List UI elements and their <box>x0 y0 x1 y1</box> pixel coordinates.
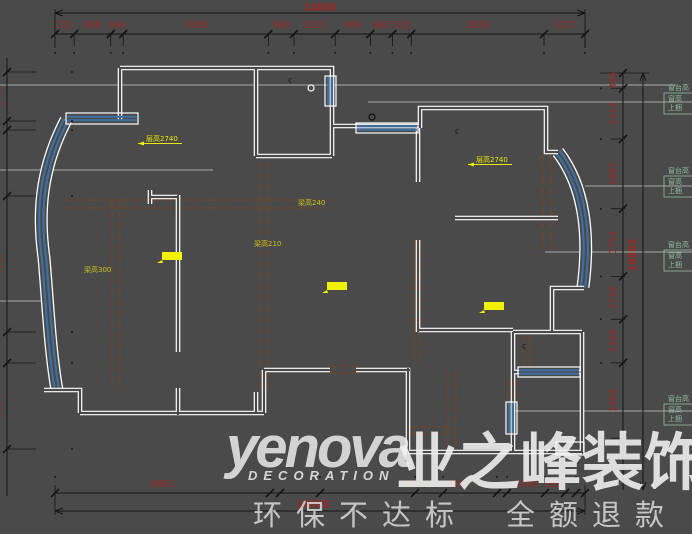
dim-value: 698 <box>273 20 290 31</box>
window-note-line: 窗高 <box>668 177 682 186</box>
dim-value: 1123 <box>303 20 326 31</box>
dim-value: 340 <box>108 20 125 31</box>
room-height-label: 层高2740 <box>146 134 178 143</box>
dim-value: 1954 <box>608 389 619 412</box>
window-note-line: 上捆 <box>668 260 682 269</box>
highlight-bar <box>484 302 504 310</box>
dim-value: 1807 <box>608 162 619 185</box>
highlight-bar <box>327 282 347 290</box>
dim-total: 14988 <box>296 498 329 511</box>
window-note-line: 窗高 <box>668 94 682 103</box>
dim-value: 1753 <box>608 231 619 254</box>
dim-value: 522 <box>56 20 73 31</box>
window-note-line: 窗台高 <box>668 240 689 249</box>
dim-value: 513 <box>393 20 410 31</box>
windows <box>66 76 580 434</box>
dim-value: 395 <box>608 72 619 89</box>
beam-height-label: 梁高240 <box>298 198 325 207</box>
beam-height-label: 梁高210 <box>254 239 281 248</box>
switch-symbol: ς <box>522 342 526 350</box>
switch-symbol: ς <box>455 127 459 135</box>
right-dimension-chain: 39513141807175311101129195410802 <box>600 69 649 490</box>
dim-total: 10802 <box>626 238 639 271</box>
bottom-dimension-chain: 60632401590106096014988 <box>51 476 589 515</box>
cad-floorplan-screenshot: { "colors": { "background": "#4a4a4a", "… <box>0 0 692 534</box>
floor-plan-canvas: ς ς ς 1480052299834039586981123960603513… <box>0 0 692 534</box>
window-note-line: 窗高 <box>668 405 682 414</box>
dim-value: 603 <box>373 20 390 31</box>
dim-value: 3958 <box>184 20 207 31</box>
dim-value: 1060 <box>516 479 539 490</box>
switch-symbol: ς <box>288 76 292 84</box>
window-note-line: 上捆 <box>668 414 682 423</box>
beam-height-label: 梁高300 <box>84 265 111 274</box>
circle-symbol <box>369 114 375 120</box>
label-arrow <box>138 142 144 146</box>
yellow-highlights <box>157 252 504 313</box>
room-height-labels: 层高2740层高2740 <box>138 134 512 167</box>
dim-value: 998 <box>84 20 101 31</box>
highlight-bar <box>162 252 182 260</box>
walls <box>44 68 584 452</box>
room-height-label: 层高2740 <box>476 155 508 164</box>
dim-value: 3004 <box>0 394 4 417</box>
dim-value: 1110 <box>608 286 619 309</box>
dim-value: 4110 <box>0 252 4 275</box>
circle-symbol <box>308 85 314 91</box>
dim-value: 1495 <box>0 85 4 108</box>
dim-value: 1590 <box>446 479 469 490</box>
dim-value: 240 <box>404 479 421 490</box>
window-note-line: 窗台高 <box>668 394 689 403</box>
window-note-line: 窗高 <box>668 251 682 260</box>
dim-value: 960 <box>344 20 361 31</box>
dim-value: 960 <box>545 479 562 490</box>
window-note-line: 窗台高 <box>668 83 689 92</box>
dim-value: 3620 <box>466 20 489 31</box>
window-note-line: 上捆 <box>668 103 682 112</box>
window-note-line: 上捆 <box>668 186 682 195</box>
top-dimension-chain: 1480052299834039586981123960603513362011… <box>51 1 589 54</box>
dim-value: 1129 <box>608 329 619 352</box>
dim-value: 1314 <box>608 102 619 125</box>
dim-total: 14800 <box>303 1 336 14</box>
window-note-line: 窗台高 <box>668 166 689 175</box>
window-notes: 窗台高窗高上捆窗台高窗高上捆窗台高窗高上捆窗台高窗高上捆 <box>664 83 692 425</box>
label-arrow <box>468 163 474 167</box>
dim-value: 1117 <box>553 20 576 31</box>
dim-value: 6063 <box>151 479 174 490</box>
